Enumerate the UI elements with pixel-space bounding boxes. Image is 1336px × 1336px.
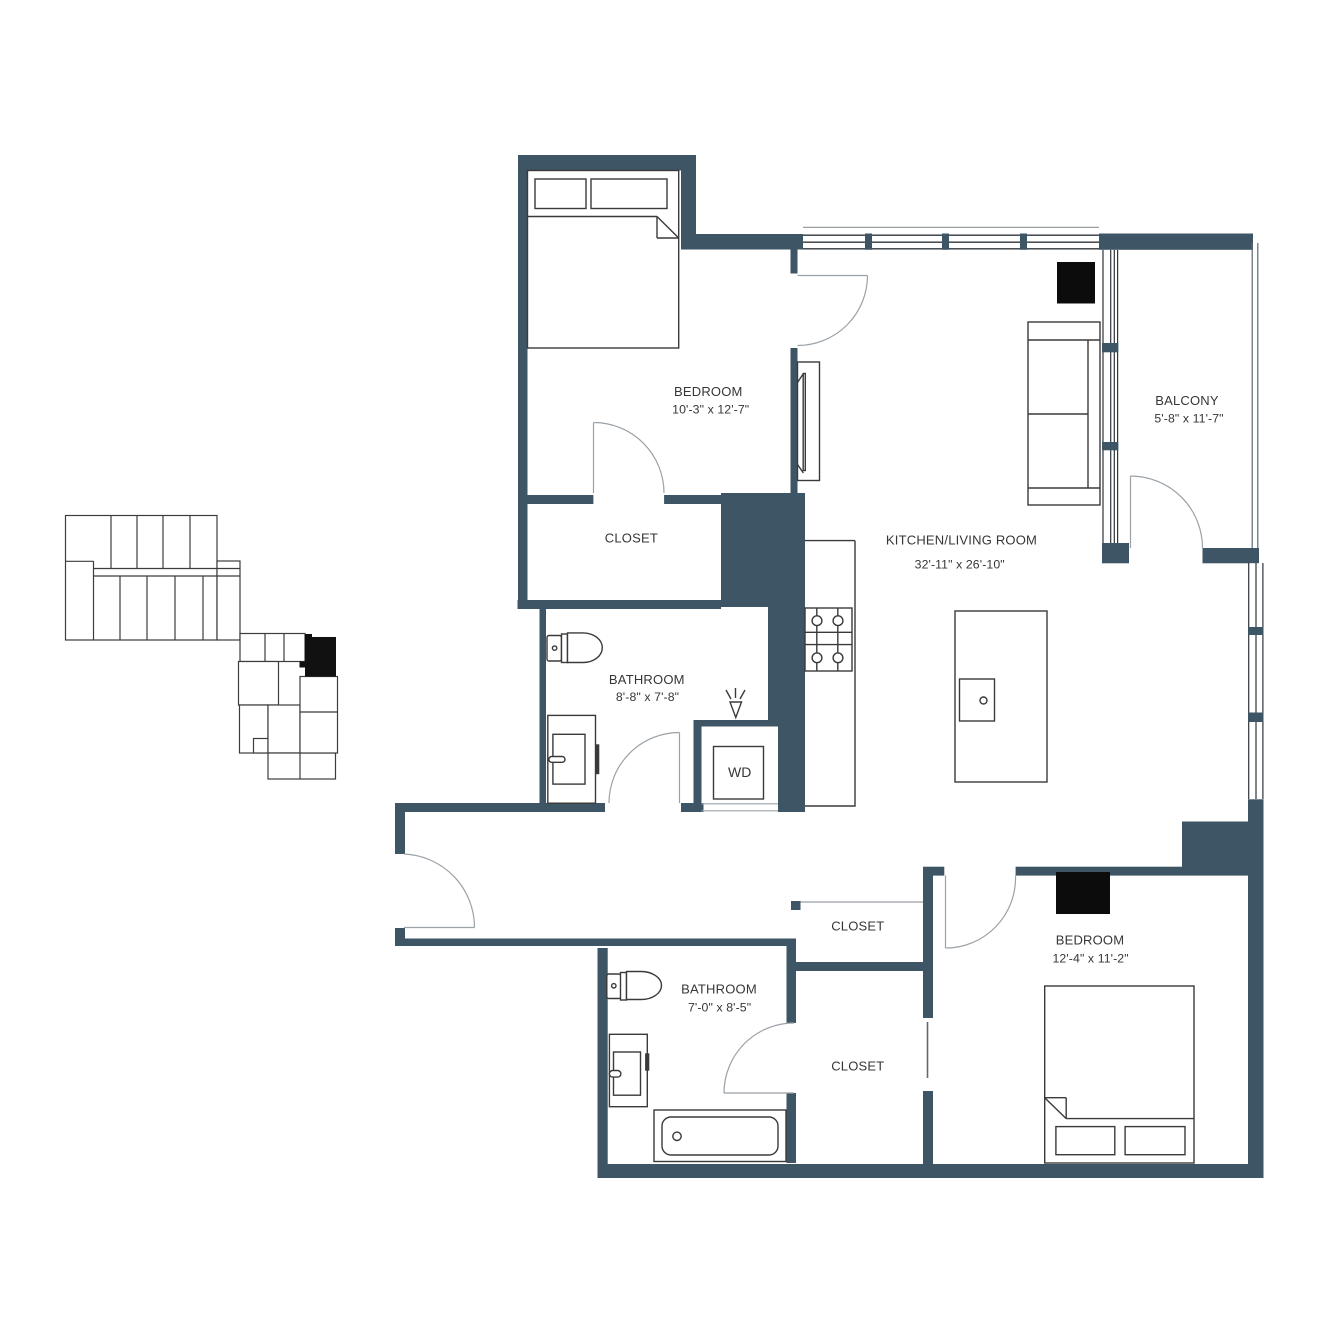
svg-text:CLOSET: CLOSET [831, 919, 884, 934]
svg-text:CLOSET: CLOSET [605, 531, 658, 546]
svg-text:10'-3" x 12'-7": 10'-3" x 12'-7" [672, 403, 749, 417]
svg-text:CLOSET: CLOSET [831, 1059, 884, 1074]
svg-text:12'-4" x 11'-2": 12'-4" x 11'-2" [1052, 952, 1128, 966]
svg-text:BALCONY: BALCONY [1155, 393, 1219, 408]
svg-text:7'-0" x 8'-5": 7'-0" x 8'-5" [688, 1001, 751, 1015]
svg-text:8'-8" x 7'-8": 8'-8" x 7'-8" [616, 690, 679, 704]
svg-text:BATHROOM: BATHROOM [609, 672, 685, 687]
svg-text:KITCHEN/LIVING ROOM: KITCHEN/LIVING ROOM [886, 533, 1037, 548]
svg-text:BATHROOM: BATHROOM [681, 982, 757, 997]
svg-text:WD: WD [728, 764, 751, 780]
svg-text:BEDROOM: BEDROOM [674, 384, 743, 399]
svg-text:32'-11" x 26'-10": 32'-11" x 26'-10" [915, 558, 1005, 572]
svg-text:5'-8" x 11'-7": 5'-8" x 11'-7" [1154, 412, 1223, 426]
svg-text:BEDROOM: BEDROOM [1056, 933, 1125, 948]
